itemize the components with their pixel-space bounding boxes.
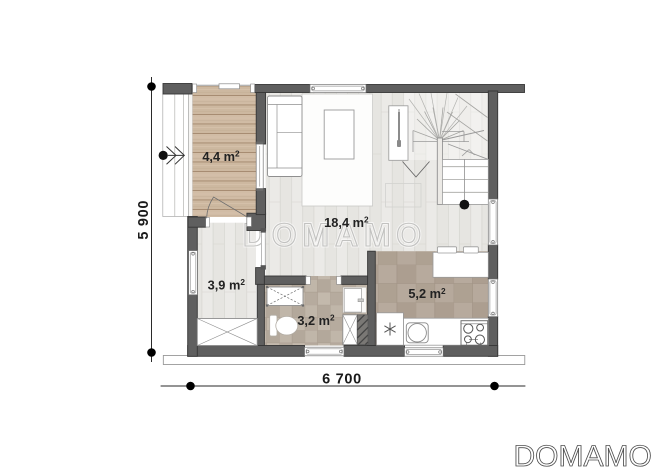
svg-text:3,9 m2: 3,9 m2 bbox=[208, 277, 246, 292]
svg-text:5 900: 5 900 bbox=[136, 200, 152, 240]
svg-text:3,2 m2: 3,2 m2 bbox=[297, 313, 335, 328]
svg-text:18,4 m2: 18,4 m2 bbox=[324, 215, 369, 230]
svg-text:6 700: 6 700 bbox=[322, 372, 362, 388]
svg-text:5,2 m2: 5,2 m2 bbox=[408, 286, 446, 301]
svg-text:4,4 m2: 4,4 m2 bbox=[202, 149, 240, 164]
svg-text:DOMAMO: DOMAMO bbox=[514, 440, 652, 470]
